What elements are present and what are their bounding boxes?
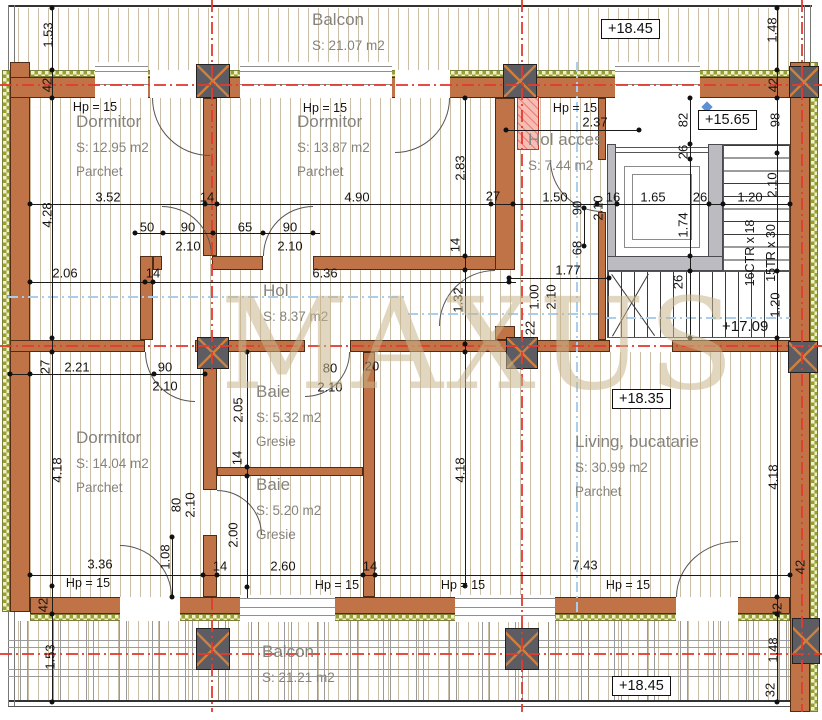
elevator-wall-right (708, 144, 723, 271)
window-line (240, 615, 335, 616)
dimension-dot (203, 372, 208, 377)
parapet-height-label: Hp = 15 (303, 101, 347, 115)
dimension-dot (707, 202, 712, 207)
dimension-dot (50, 6, 55, 11)
dim-label: 2.10 (183, 492, 198, 517)
dim-label: 82 (676, 113, 691, 127)
balcony-door-gap (676, 597, 738, 621)
balcony-bottom-floor (8, 621, 790, 702)
dim-label: 14 (448, 238, 463, 252)
parapet-height-label: Hp = 15 (315, 578, 359, 592)
column (789, 66, 819, 98)
room-area: S: 21.21 m2 (262, 670, 335, 685)
dim-label: 2.60 (270, 559, 295, 574)
dim-label: 14 (213, 559, 227, 574)
elevator-wall-left (607, 144, 616, 271)
room-name: Hol acces (528, 130, 603, 150)
dim-label: 1.48 (765, 17, 780, 42)
balcony-door-gap (120, 597, 180, 621)
dim-label: 14 (230, 451, 245, 465)
dim-label: 4.18 (766, 464, 781, 489)
window (95, 62, 148, 98)
dimension-dot (775, 96, 780, 101)
dim-label: 1.50 (542, 190, 567, 205)
window-line (455, 615, 555, 616)
window (240, 595, 335, 622)
dim-label: 50 (140, 220, 154, 235)
dimension-dot (245, 585, 250, 590)
dim-label: 32 (763, 683, 778, 697)
dimension-dot (788, 202, 793, 207)
dim-label: 2.10 (175, 239, 200, 254)
window-line (615, 71, 700, 72)
dimension-dot (688, 96, 693, 101)
dim-label: 1.65 (640, 190, 665, 205)
axis-red (0, 653, 822, 655)
dimension-dot (152, 372, 157, 377)
window-line (240, 598, 335, 599)
dimension-dot (50, 68, 55, 73)
dimension-dot (637, 128, 642, 133)
dimension-dot (775, 336, 780, 341)
room-finish: Parchet (297, 164, 370, 179)
dimension-dot (50, 96, 55, 101)
balcony-top-edge (8, 5, 812, 7)
parapet-height-label: Hp = 15 (606, 578, 650, 592)
watermark-logo: MAXUS (220, 282, 737, 408)
balcony-rail (8, 647, 790, 648)
axis-red (801, 0, 803, 712)
dim-label: 42 (40, 78, 55, 92)
dim-label: 2.21 (64, 360, 89, 375)
dimension-dot (721, 202, 726, 207)
dim-label: 1.20 (737, 190, 762, 205)
dim-label: 2.10 (591, 195, 606, 220)
window (615, 62, 700, 98)
room-area: S: 21.07 m2 (312, 38, 385, 53)
dimension-dot (211, 231, 216, 236)
dim-label: 68 (570, 241, 585, 255)
axis-red (211, 598, 213, 712)
dimension-dot (311, 231, 316, 236)
dimension-line (30, 204, 790, 205)
room-label-hol-acces: Hol acces S: 7.44 m2 (528, 130, 603, 182)
dim-label: 2.06 (52, 266, 77, 281)
insulation-left (2, 70, 10, 612)
window-line (455, 607, 555, 608)
dimension-dot (775, 6, 780, 11)
dimension-line (52, 8, 53, 704)
parapet-height-label: Hp = 15 (73, 100, 117, 114)
room-label-baie2: Baie S: 5.20 m2 Gresie (256, 475, 321, 551)
dimension-dot (50, 584, 55, 589)
room-finish: Parchet (575, 484, 699, 499)
dim-label: 26 (693, 190, 707, 205)
dimension-dot (261, 231, 266, 236)
balcony-rail (8, 669, 790, 670)
dimension-dot (775, 68, 780, 73)
room-area: S: 13.87 m2 (297, 140, 370, 155)
dim-label: 4.18 (453, 457, 468, 482)
dimension-dot (50, 350, 55, 355)
room-finish: Gresie (256, 527, 321, 542)
room-name: Dormitor (76, 112, 149, 132)
window-line (95, 66, 148, 67)
dimension-dot (511, 202, 516, 207)
room-name: Dormitor (76, 428, 149, 448)
dim-label: 80 (169, 498, 184, 512)
dimension-dot (215, 202, 220, 207)
dim-label: 65 (238, 220, 252, 235)
parapet-height-label: Hp = 15 (66, 576, 110, 590)
elevator-door (616, 147, 708, 153)
level-marker-top-right: +18.45 (601, 19, 660, 39)
room-area: S: 14.04 m2 (76, 456, 149, 471)
balcony-bottom-edge (8, 700, 812, 702)
room-name: Baie (256, 475, 321, 495)
dimension-dot (133, 231, 138, 236)
dim-label: 98 (768, 113, 783, 127)
room-label-balcon-bottom: Balcon S: 21.21 m2 (262, 642, 335, 694)
dim-label: 2.37 (582, 115, 607, 130)
axis-red (0, 84, 822, 86)
balcony-bottom-edge2 (8, 706, 812, 707)
dim-label: 7.43 (572, 558, 597, 573)
balcony-rail (8, 676, 790, 677)
balcony-top-floor (8, 8, 804, 70)
window-line (240, 66, 392, 67)
dim-label: 2.10 (277, 239, 302, 254)
dimension-dot (775, 595, 780, 600)
dim-label: 14 (146, 266, 160, 281)
window (240, 62, 392, 98)
balcony-rail (8, 640, 790, 641)
dim-label: 90 (181, 220, 195, 235)
dimension-line (30, 575, 790, 576)
room-name: Balcon (262, 642, 335, 662)
room-finish: Parchet (76, 164, 149, 179)
room-finish: Parchet (76, 480, 149, 495)
dim-label: 14 (363, 559, 377, 574)
balcony-bottom-left-edge (8, 612, 15, 706)
dim-label: 4.90 (344, 190, 369, 205)
dimension-dot (50, 612, 55, 617)
room-finish: Gresie (256, 434, 321, 449)
dimension-dot (688, 254, 693, 259)
dimension-dot (245, 465, 250, 470)
dimension-dot (28, 573, 33, 578)
dimension-dot (28, 202, 33, 207)
elevator-wall-bottom (607, 256, 723, 271)
wall-hall-north (313, 256, 509, 270)
dim-label: 90 (158, 360, 172, 375)
dimension-dot (170, 595, 175, 600)
dim-label: 27 (486, 189, 500, 204)
window-line (455, 598, 555, 599)
dimension-dot (50, 700, 55, 705)
column (196, 64, 230, 98)
dimension-dot (8, 372, 13, 377)
room-label-dormitor1: Dormitor S: 12.95 m2 Parchet (76, 112, 149, 188)
dimension-dot (170, 535, 175, 540)
dimension-dot (463, 254, 468, 259)
room-name: Dormitor (297, 112, 370, 132)
column (503, 64, 537, 98)
room-area: S: 5.20 m2 (256, 503, 321, 518)
window-line (95, 71, 148, 72)
dimension-dot (201, 573, 206, 578)
dim-label: 27 (38, 360, 53, 374)
column (196, 628, 230, 670)
level-marker-landing: +15.65 (698, 110, 757, 130)
dimension-dot (161, 231, 166, 236)
parapet-height-label: Hp = 15 (553, 101, 597, 115)
room-label-dormitor2: Dormitor S: 13.87 m2 Parchet (297, 112, 370, 188)
room-area: S: 12.95 m2 (76, 140, 149, 155)
dim-label: 1.74 (676, 212, 691, 237)
wall-exterior-left (10, 62, 30, 612)
room-name: Balcon (312, 10, 385, 30)
dim-label: 26 (676, 145, 691, 159)
room-label-dormitor3: Dormitor S: 14.04 m2 Parchet (76, 428, 149, 504)
dimension-dot (28, 372, 33, 377)
balcony-top-left-edge (8, 5, 15, 70)
dim-label: 4.28 (40, 202, 55, 227)
window (455, 595, 555, 622)
dim-label: 4.18 (50, 457, 65, 482)
dim-label: 90 (283, 220, 297, 235)
dim-label: 3.36 (87, 557, 112, 572)
room-area: S: 30.99 m2 (575, 460, 699, 475)
axis-red (211, 0, 213, 372)
dimension-dot (504, 128, 509, 133)
dim-label: 42 (793, 560, 808, 574)
dim-label: 2.83 (453, 155, 468, 180)
dimension-dot (775, 700, 780, 705)
dimension-dot (50, 336, 55, 341)
dim-label: 90 (570, 201, 585, 215)
stair-note-treads: 15TR x 30 (764, 224, 778, 282)
window-line (240, 71, 392, 72)
wall-holacces-west (495, 98, 515, 270)
dimension-dot (775, 151, 780, 156)
room-label-living: Living, bucatarie S: 30.99 m2 Parchet (575, 432, 699, 508)
dim-label: 42 (770, 603, 785, 617)
floor-plan: Balcon S: 21.07 m2 Dormitor S: 12.95 m2 … (0, 0, 822, 720)
dim-label: 16 (606, 190, 620, 205)
dim-label: 2.10 (152, 379, 177, 394)
dim-label: 2.10 (765, 172, 780, 197)
dim-label: 3.52 (95, 190, 120, 205)
column (792, 618, 820, 664)
dimension-dot (463, 96, 468, 101)
wall-exterior-right (790, 62, 810, 712)
dim-label: 1.53 (43, 644, 58, 669)
dim-label: 14 (200, 190, 214, 205)
dim-label: 1.48 (766, 637, 781, 662)
window-line (240, 607, 335, 608)
room-name: Living, bucatarie (575, 432, 699, 452)
dim-label: 2.00 (226, 522, 241, 547)
dimension-dot (245, 474, 250, 479)
dimension-dot (28, 280, 33, 285)
dim-label: 1.20 (768, 292, 783, 317)
level-marker-bottom-right: +18.45 (612, 676, 671, 696)
room-label-balcon-top: Balcon S: 21.07 m2 (312, 10, 385, 62)
balcony-top-right-edge (804, 5, 811, 70)
dim-label: 42 (766, 78, 781, 92)
stair-note-risers: 16CTR x 18 (743, 220, 757, 287)
dim-label: 1.53 (41, 22, 56, 47)
window-line (615, 66, 700, 67)
dim-label: 1.08 (158, 544, 173, 569)
dim-label: 42 (36, 598, 51, 612)
wall-hall-north (212, 256, 263, 270)
parapet-height-label: Hp = 15 (441, 578, 485, 592)
insulation-right (810, 62, 818, 712)
room-area: S: 7.44 m2 (528, 158, 603, 173)
